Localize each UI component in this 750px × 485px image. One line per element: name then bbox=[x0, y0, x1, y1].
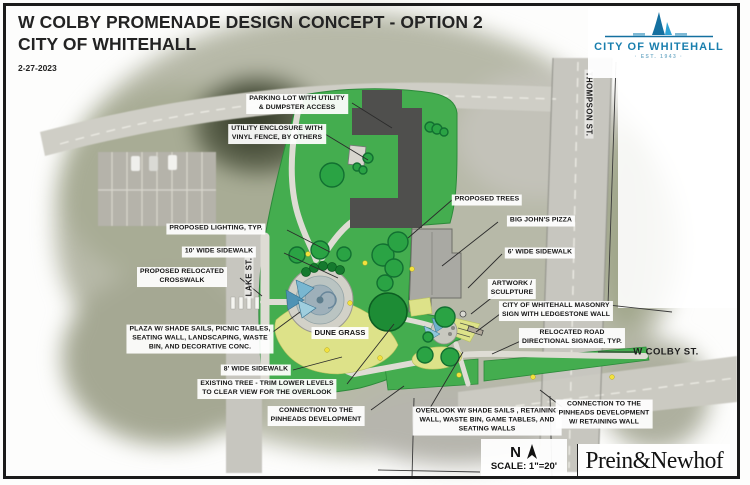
callout-plaza: PLAZA W/ SHADE SAILS, PICNIC TABLES, SEA… bbox=[126, 325, 273, 354]
artwork-shape bbox=[460, 311, 466, 317]
label-dune-grass: DUNE GRASS bbox=[311, 327, 368, 339]
callout-big-johns-pizza: BIG JOHN'S PIZZA bbox=[507, 216, 575, 227]
callout-6ft-sidewalk: 6' WIDE SIDEWALK bbox=[505, 248, 575, 259]
callout-overlook: OVERLOOK W/ SHADE SAILS , RETAINING WALL… bbox=[413, 407, 562, 436]
north-arrow-icon bbox=[526, 444, 538, 460]
sailboat-icon bbox=[599, 10, 719, 40]
callout-masonry-sign: CITY OF WHITEHALL MASONRY SIGN WITH LEDG… bbox=[499, 301, 613, 321]
crosswalk-shape bbox=[231, 297, 259, 309]
title-block: W COLBY PROMENADE DESIGN CONCEPT - OPTIO… bbox=[18, 12, 483, 73]
callout-connection-retaining: CONNECTION TO THE PINHEADS DEVELOPMENT W… bbox=[556, 400, 653, 429]
firm-name: Prein&Newhof bbox=[585, 448, 723, 475]
callout-proposed-trees: PROPOSED TREES bbox=[452, 195, 522, 206]
city-logo: CITY OF WHITEHALL · EST. 1943 · bbox=[588, 8, 730, 78]
north-label: N bbox=[510, 444, 521, 461]
callout-8ft-sidewalk: 8' WIDE SIDEWALK bbox=[221, 365, 291, 376]
city-logo-est: · EST. 1943 · bbox=[635, 54, 684, 60]
callout-utility-enclosure: UTILITY ENCLOSURE WITH VINYL FENCE, BY O… bbox=[228, 124, 326, 144]
city-logo-name: CITY OF WHITEHALL bbox=[594, 41, 724, 53]
sheet-date: 2-27-2023 bbox=[18, 63, 483, 73]
firm-logo: Prein&Newhof bbox=[577, 444, 730, 478]
callout-road-signage: RELOCATED ROAD DIRECTIONAL SIGNAGE, TYP. bbox=[519, 328, 625, 348]
street-label-w-colby: W COLBY ST. bbox=[631, 347, 700, 358]
scale-label: SCALE: 1"=20' bbox=[491, 461, 557, 472]
street-label-lake: LAKE ST. bbox=[245, 256, 254, 299]
street-label-thompson: THOMPSON ST. bbox=[585, 70, 594, 139]
callout-parking-lot: PARKING LOT WITH UTILITY & DUMPSTER ACCE… bbox=[246, 94, 348, 114]
callout-artwork: ARTWORK / SCULPTURE bbox=[488, 279, 536, 299]
callout-proposed-lighting: PROPOSED LIGHTING, TYP. bbox=[166, 224, 265, 235]
callout-existing-tree: EXISTING TREE - TRIM LOWER LEVELS TO CLE… bbox=[197, 379, 336, 399]
sheet-subtitle: CITY OF WHITEHALL bbox=[18, 34, 483, 56]
callout-relocated-crosswalk: PROPOSED RELOCATED CROSSWALK bbox=[137, 267, 227, 287]
sheet-title: W COLBY PROMENADE DESIGN CONCEPT - OPTIO… bbox=[18, 12, 483, 34]
existing-tree-shape bbox=[369, 293, 407, 331]
north-scale-box: N SCALE: 1"=20' bbox=[481, 439, 567, 476]
site-plan-sheet: PARKING LOT WITH UTILITY & DUMPSTER ACCE… bbox=[0, 0, 750, 485]
callout-connection-pinheads: CONNECTION TO THE PINHEADS DEVELOPMENT bbox=[268, 406, 365, 426]
